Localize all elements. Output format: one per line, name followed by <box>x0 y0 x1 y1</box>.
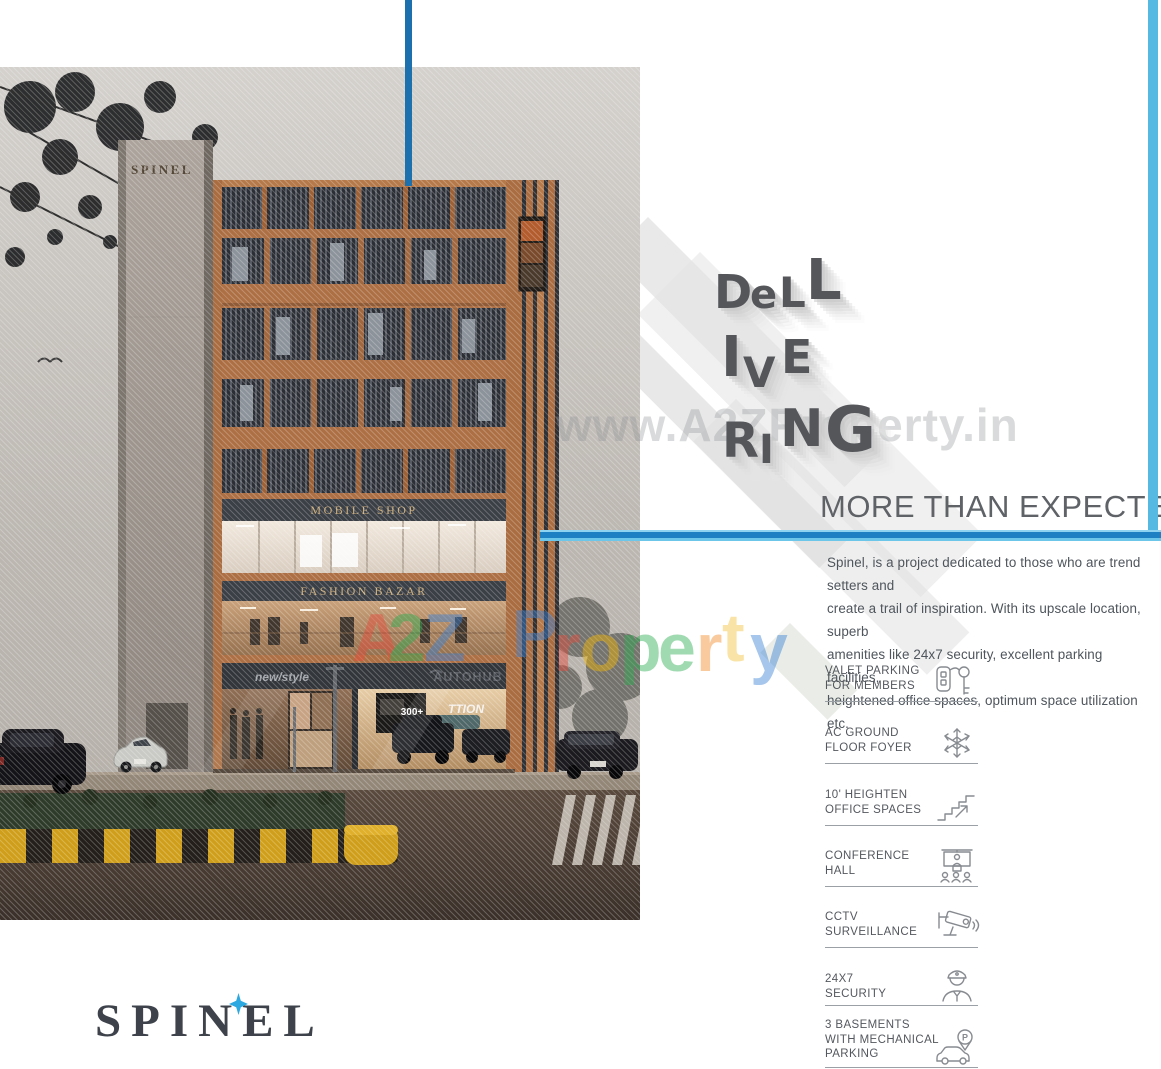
building-rendering: SPINEL <box>0 67 640 920</box>
amenity-item: VALET PARKING FOR MEMBERS <box>825 664 978 702</box>
watermark-letter: y <box>750 614 788 682</box>
poster: SPINEL <box>0 0 1161 1069</box>
amenity-item: AC GROUND FLOOR FOYER <box>825 726 978 764</box>
tagline: MORE THAN EXPECTED <box>820 489 1138 525</box>
headline-letter: R <box>722 417 759 465</box>
watermark-letter: t <box>722 604 745 672</box>
snowflake-icon <box>934 724 980 762</box>
headline-letter: G <box>825 399 876 461</box>
amenity-item: 10' HEIGHTEN OFFICE SPACES <box>825 788 978 826</box>
headline-letter: V <box>743 352 776 394</box>
right-blue-line <box>1148 0 1158 541</box>
headline-letter: I <box>759 430 774 470</box>
headline-letter: D <box>714 269 752 315</box>
project-description: Spinel, is a project dedicated to those … <box>827 551 1149 735</box>
spinel-logo: SPINEL <box>95 998 325 1045</box>
headline-letter: L <box>779 272 806 314</box>
facade: MOBILE SHOP FASHION BAZAR <box>200 180 515 772</box>
watermark-letter: r <box>696 614 722 682</box>
cctv-camera-icon <box>934 908 980 946</box>
billboard <box>519 217 545 291</box>
tower-sign: SPINEL <box>131 162 193 177</box>
car-key-icon <box>934 662 980 700</box>
headline-letter: I <box>721 330 742 386</box>
stairs-icon <box>934 786 980 824</box>
fashion-bazar-sign: FASHION BAZAR <box>300 584 427 598</box>
parked-car-dark-left <box>0 729 86 794</box>
watermark-letter: 2 <box>388 604 426 672</box>
watermark-letter: e <box>658 614 696 682</box>
tagline-accent-underline <box>540 530 1161 541</box>
watermark-letter: o <box>580 614 622 682</box>
headline-letter: e <box>750 275 777 315</box>
new-style-sign: new/style <box>255 670 309 684</box>
security-guard-icon <box>934 966 980 1004</box>
mobile-shop-sign: MOBILE SHOP <box>310 503 417 517</box>
headline-letter: E <box>781 334 812 380</box>
watermark-letter: r <box>554 614 580 682</box>
headline-letter: N <box>780 403 824 455</box>
amenity-item: CCTV SURVEILLANCE <box>825 910 978 948</box>
amenity-item: 24X7 SECURITY <box>825 972 978 1006</box>
top-blue-line <box>405 0 412 186</box>
watermark-letter: Z <box>424 604 466 672</box>
amenity-item: CONFERENCE HALL <box>825 849 978 887</box>
tower: SPINEL <box>118 140 213 772</box>
bird-silhouette <box>38 359 62 363</box>
svg-text:P: P <box>962 1033 968 1043</box>
watermark-letter: P <box>512 600 557 668</box>
conference-hall-icon <box>934 847 980 885</box>
mechanical-parking-icon: P <box>934 1028 980 1066</box>
logo-star-icon <box>229 993 248 1015</box>
building-scene: SPINEL <box>0 67 640 920</box>
headline-letter: L <box>806 253 842 309</box>
showroom-banner-text: TTION <box>448 702 484 716</box>
watermark-letter: p <box>620 614 662 682</box>
parked-car-dark-right <box>556 731 638 779</box>
amenity-item: 3 BASEMENTS WITH MECHANICAL PARKING P <box>825 1018 978 1068</box>
